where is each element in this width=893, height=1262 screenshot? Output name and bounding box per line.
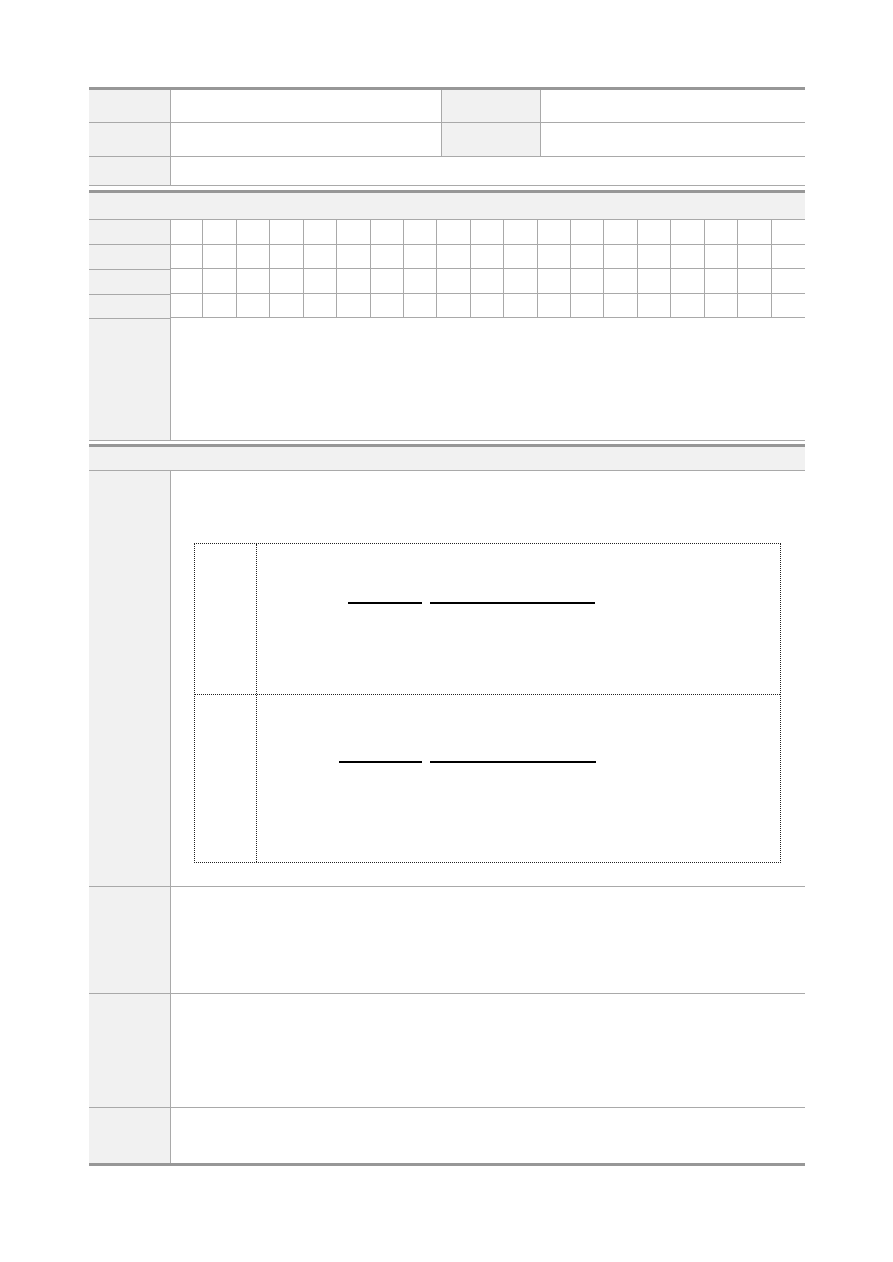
info-row-divider	[89, 156, 805, 157]
section1-header-band	[89, 193, 805, 219]
char-cell[interactable]	[538, 269, 571, 294]
grid-label-divider	[89, 244, 170, 245]
char-cell[interactable]	[237, 220, 270, 245]
char-cell[interactable]	[471, 294, 504, 319]
char-cell[interactable]	[437, 269, 470, 294]
info-row2-label2	[442, 123, 539, 155]
section2-row4-label	[89, 1108, 170, 1163]
char-cell[interactable]	[203, 220, 236, 245]
char-cell[interactable]	[304, 294, 337, 319]
char-cell[interactable]	[738, 294, 771, 319]
char-cell[interactable]	[404, 245, 437, 270]
char-cell[interactable]	[203, 269, 236, 294]
info-row3-value[interactable]	[171, 157, 805, 184]
grid-row2-label	[89, 245, 170, 269]
blank-line	[339, 761, 422, 763]
char-cell[interactable]	[671, 245, 704, 270]
char-cell[interactable]	[170, 294, 203, 319]
char-cell[interactable]	[304, 220, 337, 245]
info-row1-label2	[442, 90, 539, 122]
char-cell[interactable]	[571, 220, 604, 245]
info-label2-right-divider	[540, 90, 541, 156]
info-row1-value2[interactable]	[541, 90, 805, 122]
char-cell[interactable]	[772, 220, 805, 245]
section2-row2-label	[89, 887, 170, 992]
char-cell[interactable]	[404, 220, 437, 245]
char-cell[interactable]	[371, 294, 404, 319]
char-cell[interactable]	[437, 220, 470, 245]
char-cell[interactable]	[638, 294, 671, 319]
char-cell[interactable]	[738, 269, 771, 294]
info-row2-value1[interactable]	[171, 123, 440, 155]
char-cell[interactable]	[270, 269, 303, 294]
char-cell[interactable]	[604, 269, 637, 294]
char-cell[interactable]	[437, 245, 470, 270]
section2-row4-content[interactable]	[171, 1108, 805, 1163]
char-cell[interactable]	[538, 220, 571, 245]
char-cell[interactable]	[270, 220, 303, 245]
section2-row2-content[interactable]	[171, 887, 805, 992]
char-cell[interactable]	[270, 294, 303, 319]
char-cell[interactable]	[772, 245, 805, 270]
document-page	[0, 0, 893, 1262]
blank-line	[348, 602, 422, 604]
dotted-row1-side-label	[195, 544, 256, 692]
section1-bottom-border	[89, 440, 805, 441]
blank-line	[430, 602, 595, 604]
char-cell[interactable]	[504, 220, 537, 245]
info-row3-label	[89, 157, 170, 184]
info-row2-value2[interactable]	[541, 123, 805, 155]
info-row1-value1[interactable]	[171, 90, 440, 122]
info-row-divider	[89, 122, 805, 123]
char-cell[interactable]	[170, 245, 203, 270]
char-cell[interactable]	[304, 245, 337, 270]
char-cell[interactable]	[638, 245, 671, 270]
char-cell[interactable]	[538, 294, 571, 319]
grid-label-divider	[89, 269, 170, 270]
grid-row4-label	[89, 295, 170, 318]
char-cell[interactable]	[371, 220, 404, 245]
char-cell[interactable]	[471, 269, 504, 294]
dotted-row2-side-label	[195, 694, 256, 862]
info-row1-label1	[89, 90, 170, 122]
char-cell[interactable]	[471, 220, 504, 245]
char-cell[interactable]	[671, 269, 704, 294]
blank-line	[430, 761, 596, 763]
char-cell[interactable]	[471, 245, 504, 270]
char-cell[interactable]	[571, 294, 604, 319]
char-cell[interactable]	[671, 220, 704, 245]
char-cell[interactable]	[337, 294, 370, 319]
info-label2-left-divider	[441, 90, 442, 156]
dotted-row2-content[interactable]	[257, 694, 780, 862]
char-cell[interactable]	[504, 269, 537, 294]
info-label-column-divider	[170, 90, 171, 185]
char-cell[interactable]	[337, 269, 370, 294]
info-row2-label1	[89, 123, 170, 155]
char-cell[interactable]	[671, 294, 704, 319]
char-cell[interactable]	[772, 269, 805, 294]
grid-row1-label	[89, 220, 170, 244]
char-cell[interactable]	[237, 294, 270, 319]
section2-bottom-rule	[89, 1163, 805, 1166]
section2-row3-label	[89, 994, 170, 1106]
char-cell[interactable]	[705, 220, 738, 245]
char-cell[interactable]	[772, 294, 805, 319]
section2-main-row-label	[89, 471, 170, 885]
char-cell[interactable]	[371, 245, 404, 270]
char-cell[interactable]	[604, 220, 637, 245]
char-cell[interactable]	[538, 245, 571, 270]
char-cell[interactable]	[237, 269, 270, 294]
char-cell[interactable]	[705, 269, 738, 294]
char-cell[interactable]	[203, 245, 236, 270]
char-cell[interactable]	[571, 269, 604, 294]
char-cell[interactable]	[337, 245, 370, 270]
section1-tall-row-label	[89, 319, 170, 440]
info-table-bottom-border	[89, 185, 805, 186]
char-cell[interactable]	[170, 220, 203, 245]
char-cell[interactable]	[404, 269, 437, 294]
char-cell[interactable]	[604, 245, 637, 270]
section1-tall-row-content[interactable]	[171, 319, 805, 439]
char-cell[interactable]	[571, 245, 604, 270]
char-cell[interactable]	[638, 269, 671, 294]
char-cell[interactable]	[170, 269, 203, 294]
char-cell[interactable]	[270, 245, 303, 270]
char-cell[interactable]	[337, 220, 370, 245]
char-cell[interactable]	[304, 269, 337, 294]
char-cell[interactable]	[404, 294, 437, 319]
grid-row3-label	[89, 270, 170, 294]
section2-header-band	[89, 447, 805, 470]
char-cell[interactable]	[638, 220, 671, 245]
grid-label-divider	[89, 294, 170, 295]
char-cell[interactable]	[738, 220, 771, 245]
char-cell[interactable]	[604, 294, 637, 319]
char-cell[interactable]	[705, 294, 738, 319]
char-cell[interactable]	[504, 294, 537, 319]
char-cell[interactable]	[237, 245, 270, 270]
char-cell[interactable]	[371, 269, 404, 294]
dotted-row1-content[interactable]	[257, 544, 780, 692]
char-grid	[170, 220, 805, 318]
section2-row3-content[interactable]	[171, 994, 805, 1106]
char-cell[interactable]	[437, 294, 470, 319]
section1-label-column-divider	[170, 220, 171, 440]
char-cell[interactable]	[738, 245, 771, 270]
char-cell[interactable]	[705, 245, 738, 270]
char-cell[interactable]	[504, 245, 537, 270]
char-cell[interactable]	[203, 294, 236, 319]
